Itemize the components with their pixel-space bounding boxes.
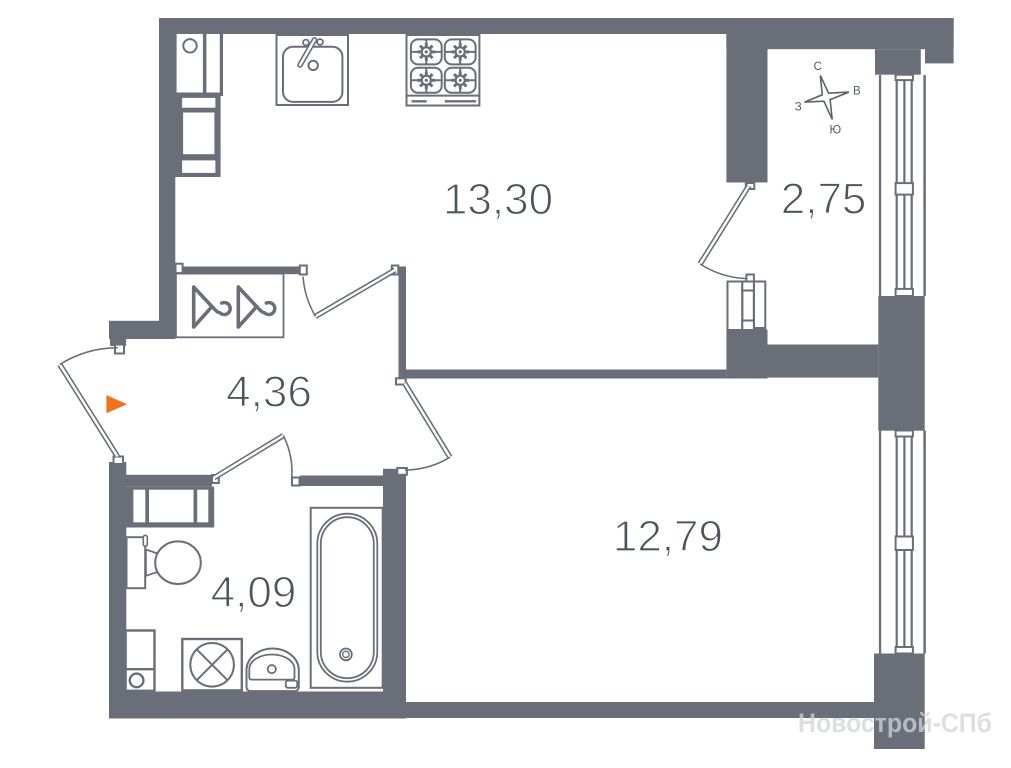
- svg-text:4,36: 4,36: [226, 368, 312, 417]
- svg-text:12,79: 12,79: [613, 512, 723, 561]
- svg-text:С: С: [814, 61, 822, 73]
- svg-text:2,75: 2,75: [781, 175, 867, 224]
- svg-text:4,09: 4,09: [211, 568, 297, 617]
- svg-text:Новострой-СПб: Новострой-СПб: [798, 708, 992, 738]
- svg-text:З: З: [795, 102, 802, 114]
- svg-text:В: В: [853, 85, 861, 97]
- svg-text:13,30: 13,30: [443, 175, 553, 224]
- svg-text:Ю: Ю: [829, 124, 841, 136]
